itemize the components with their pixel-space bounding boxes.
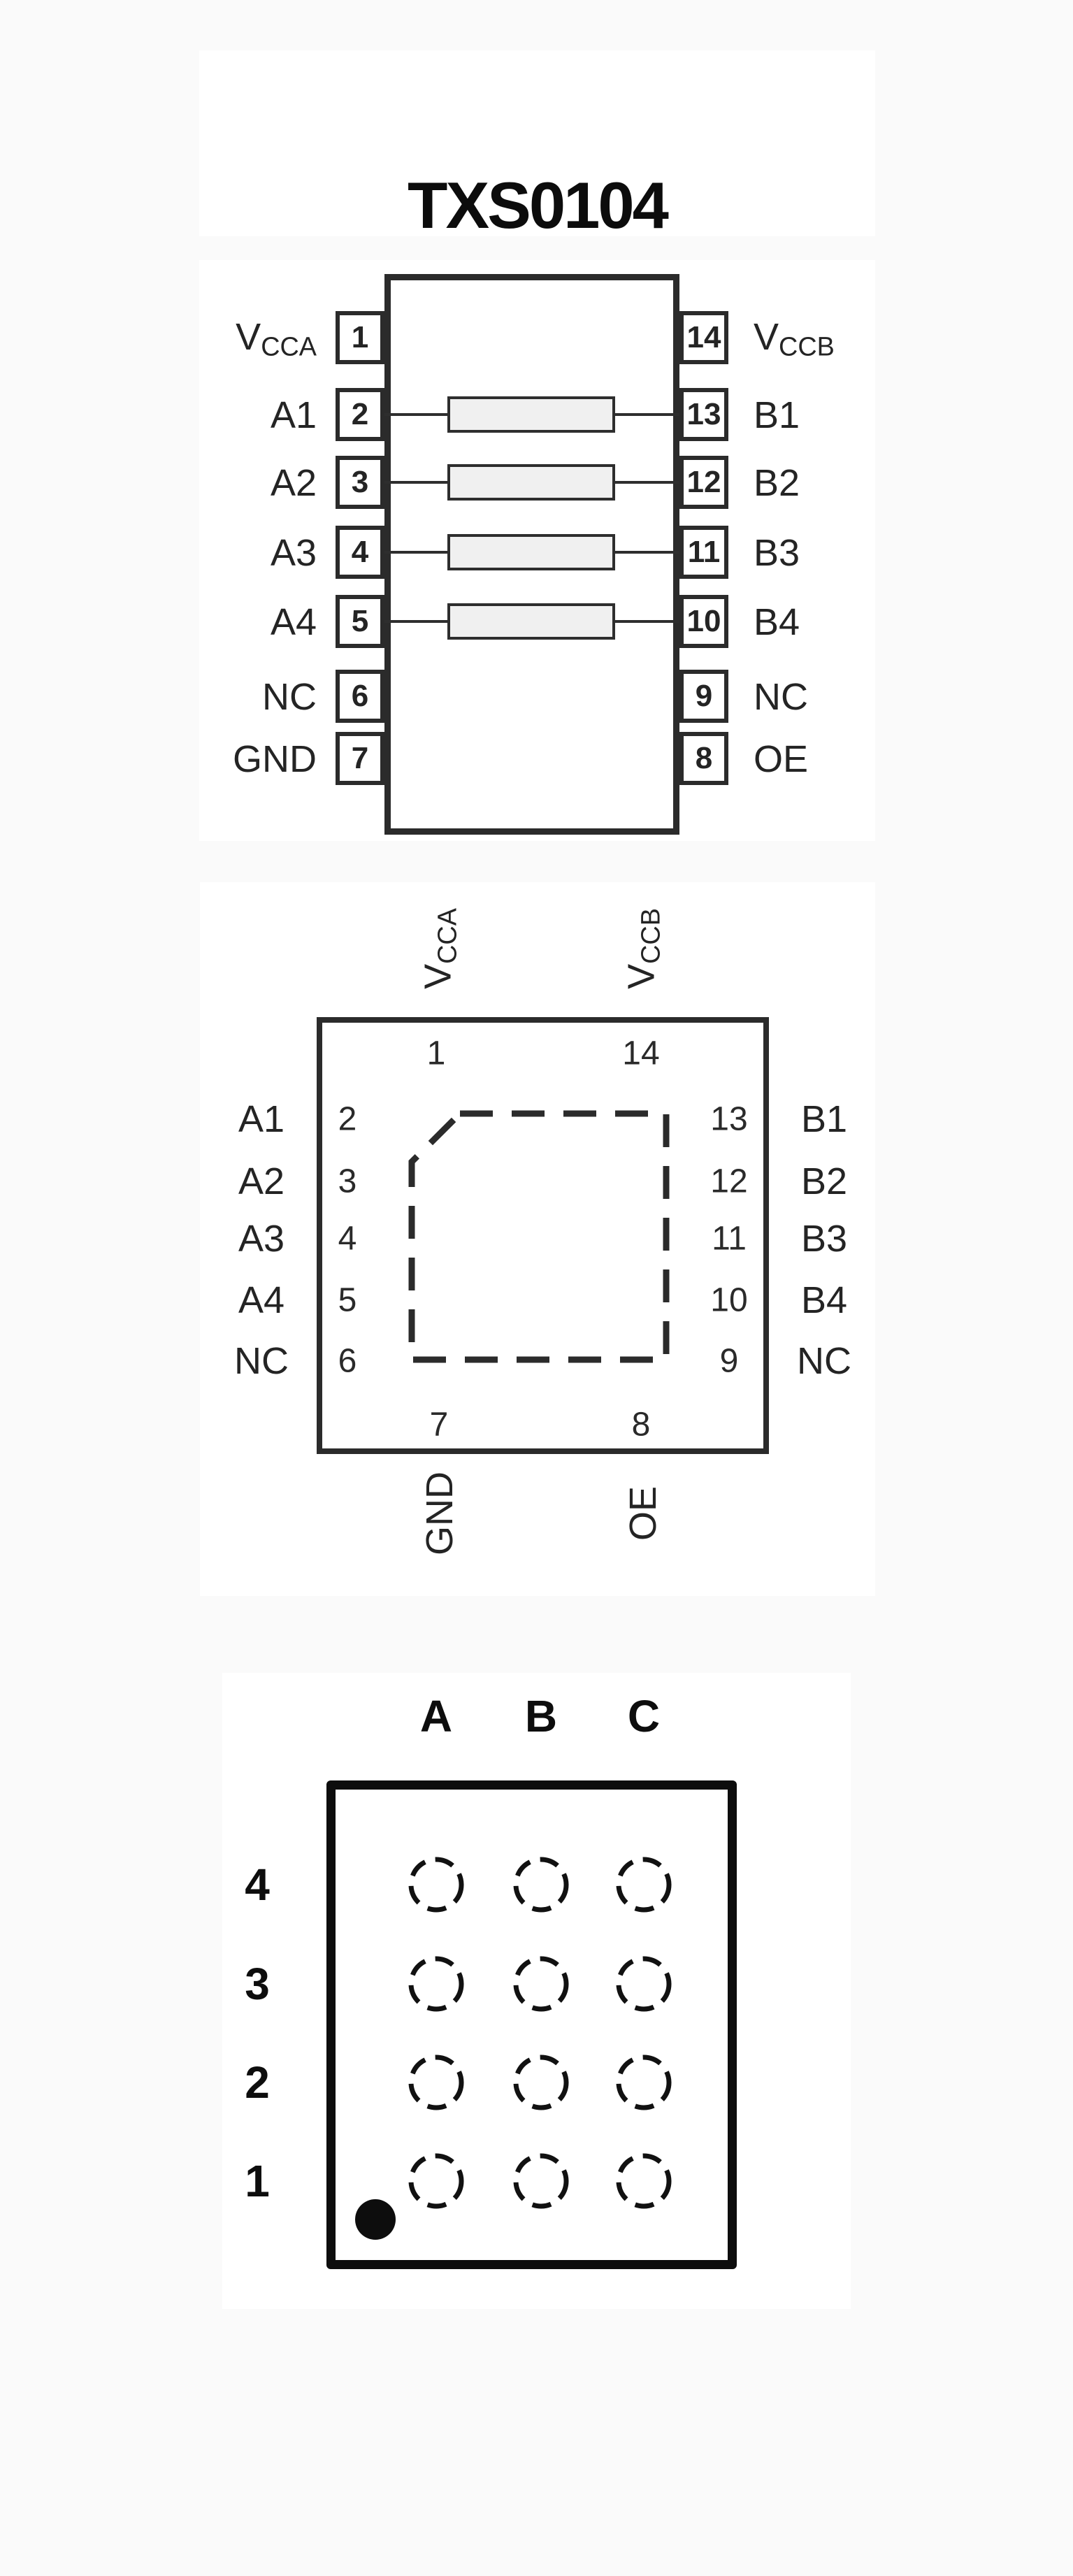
dip-pin2-box: 2 — [336, 388, 384, 441]
ball-c3 — [619, 1959, 669, 2009]
qfn-pin5-label: A4 — [238, 1279, 285, 1322]
dip-pin6-label: NC — [199, 675, 317, 719]
qfn-pin1-label: VCCA — [416, 908, 463, 989]
qfn-pin6-label: NC — [234, 1339, 289, 1383]
page: { "title": "TXS0104", "colors": { "page_… — [0, 0, 1073, 2576]
dip-resistor-4 — [447, 603, 615, 640]
bga-row-3-header: 3 — [245, 1958, 270, 2010]
qfn-pin11-label: B3 — [801, 1217, 847, 1260]
qfn-thermal-pad — [408, 1110, 670, 1363]
qfn-pin1-label-sub: CCA — [433, 908, 463, 964]
dip-resistor-2 — [447, 464, 615, 501]
qfn-pin1-num: 1 — [427, 1035, 446, 1073]
qfn-pin12-label: B2 — [801, 1160, 847, 1203]
dip-pin9-box: 9 — [679, 670, 728, 723]
dip-pin5-label: A4 — [199, 600, 317, 644]
ball-outlines — [411, 1859, 669, 2206]
dip-pin12-box: 12 — [679, 456, 728, 509]
bga-ballmap-panel: A B C 4 3 2 1 — [222, 1673, 851, 2309]
dip-wire — [615, 481, 679, 484]
qfn-pin10-num: 10 — [710, 1281, 747, 1320]
dip-pin2-label: A1 — [199, 394, 317, 437]
dip-pin13-box: 13 — [679, 388, 728, 441]
qfn-pin7-label: GND — [418, 1472, 461, 1555]
dip-pin5-box: 5 — [336, 595, 384, 648]
qfn-pin5-num: 5 — [338, 1281, 357, 1320]
qfn-pin13-label: B1 — [801, 1098, 847, 1141]
dip-pin7-box: 7 — [336, 732, 384, 785]
qfn-pin12-num: 12 — [710, 1163, 747, 1201]
dip-pin1-label-sub: CCA — [261, 332, 317, 361]
title-panel: TXS0104 — [199, 50, 875, 236]
ball-c4 — [619, 1859, 669, 1910]
ball-a3 — [411, 1959, 461, 2009]
dip-pin14-box: 14 — [679, 311, 728, 364]
dip-wire — [615, 413, 679, 416]
pin1-indicator-dot — [355, 2199, 396, 2240]
dip-pin13-label: B1 — [754, 394, 893, 437]
qfn-pinout-panel: VCCA VCCB 1 14 A1 2 A2 3 A3 4 A4 5 NC 6 … — [200, 882, 875, 1596]
dip-pin1-label-main: V — [236, 316, 261, 358]
bga-row-2-header: 2 — [245, 2057, 270, 2108]
qfn-pin9-label: NC — [797, 1339, 851, 1383]
dip-resistor-1 — [447, 396, 615, 433]
qfn-pin6-num: 6 — [338, 1342, 357, 1381]
dip-pin8-label: OE — [754, 737, 893, 781]
dip-wire — [615, 620, 679, 623]
thermal-pad-outline — [412, 1114, 666, 1360]
bga-col-a-header: A — [420, 1690, 452, 1742]
ball-a1 — [411, 2156, 461, 2206]
bga-col-b-header: B — [525, 1690, 557, 1742]
dip-pin4-label: A3 — [199, 531, 317, 575]
dip-pin10-box: 10 — [679, 595, 728, 648]
dip-pinout-panel: VCCA 1 14 VCCB A1 2 13 B1 A2 3 12 B2 A3 … — [199, 260, 875, 841]
qfn-pin13-num: 13 — [710, 1100, 747, 1139]
ball-b4 — [516, 1859, 566, 1910]
dip-wire — [384, 620, 447, 623]
dip-wire — [384, 551, 447, 554]
dip-pin4-box: 4 — [336, 526, 384, 579]
dip-pin3-label: A2 — [199, 461, 317, 505]
qfn-pin8-label: OE — [621, 1486, 665, 1541]
dip-pin8-box: 8 — [679, 732, 728, 785]
dip-wire — [384, 413, 447, 416]
dip-wire — [615, 551, 679, 554]
ball-b1 — [516, 2156, 566, 2206]
bga-row-1-header: 1 — [245, 2155, 270, 2207]
qfn-pin14-label-sub: CCB — [637, 908, 666, 964]
dip-pin7-label: GND — [199, 737, 317, 781]
dip-pin1-box: 1 — [336, 311, 384, 364]
qfn-pin3-num: 3 — [338, 1163, 357, 1201]
dip-pin10-label: B4 — [754, 600, 893, 644]
page-title: TXS0104 — [199, 168, 875, 243]
dip-pin14-label: VCCB — [754, 315, 893, 362]
qfn-pin2-num: 2 — [338, 1100, 357, 1139]
ball-c1 — [619, 2156, 669, 2206]
ball-b3 — [516, 1959, 566, 2009]
ball-a4 — [411, 1859, 461, 1910]
qfn-pin7-num: 7 — [430, 1406, 449, 1444]
dip-pin11-label: B3 — [754, 531, 893, 575]
ball-c2 — [619, 2057, 669, 2108]
bga-col-c-header: C — [628, 1690, 660, 1742]
qfn-pin10-label: B4 — [801, 1279, 847, 1322]
qfn-pin8-num: 8 — [632, 1406, 651, 1444]
qfn-pin9-num: 9 — [720, 1342, 739, 1381]
bga-ball-grid — [326, 1780, 737, 2269]
qfn-pin14-label-main: V — [620, 964, 662, 989]
qfn-pin11-num: 11 — [712, 1220, 747, 1258]
dip-pin14-label-main: V — [754, 316, 779, 358]
qfn-pin2-label: A1 — [238, 1098, 285, 1141]
qfn-pin1-label-main: V — [417, 964, 459, 989]
bga-row-4-header: 4 — [245, 1859, 270, 1911]
dip-resistor-3 — [447, 534, 615, 570]
dip-pin11-box: 11 — [679, 526, 728, 579]
dip-pin6-box: 6 — [336, 670, 384, 723]
ball-b2 — [516, 2057, 566, 2108]
dip-pin14-label-sub: CCB — [779, 332, 835, 361]
qfn-pin4-num: 4 — [338, 1220, 357, 1258]
qfn-pin3-label: A2 — [238, 1160, 285, 1203]
qfn-pin14-num: 14 — [622, 1035, 659, 1073]
dip-pin3-box: 3 — [336, 456, 384, 509]
ball-a2 — [411, 2057, 461, 2108]
qfn-pin4-label: A3 — [238, 1217, 285, 1260]
dip-wire — [384, 481, 447, 484]
dip-pin1-label: VCCA — [199, 315, 317, 362]
dip-pin12-label: B2 — [754, 461, 893, 505]
dip-pin9-label: NC — [754, 675, 893, 719]
qfn-pin14-label: VCCB — [619, 908, 666, 989]
